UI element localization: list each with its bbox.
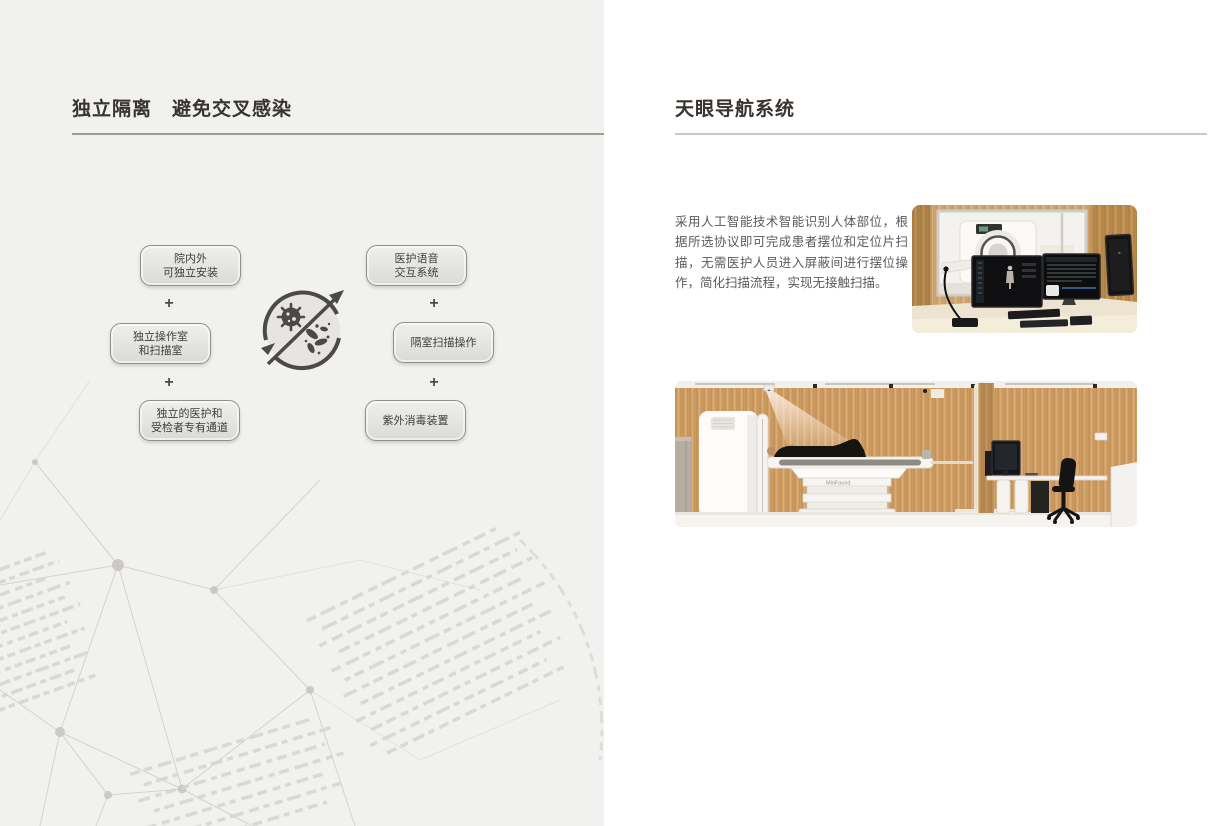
brochure-page: 独立隔离 避免交叉感染 院内外 可独立安装 独立操作室 和扫描室 独立的医护和 … [0,0,1209,826]
network-globe-background [0,0,604,826]
workstation-monitor-left [972,256,1042,307]
feature-box-isolated-scan: 隔室扫描操作 [393,322,494,363]
plus-connector: + [426,295,442,313]
scan-room-photo: MinFound [675,381,1137,527]
feature-box-label: 受检者专有通道 [151,421,228,435]
workstation-monitor-right [1043,254,1100,299]
isolation-title: 独立隔离 避免交叉感染 [72,94,292,121]
navigation-title-rule [675,133,1207,135]
feature-box-separate-rooms: 独立操作室 和扫描室 [110,323,211,364]
feature-box-uv-disinfection: 紫外消毒装置 [365,400,466,441]
right-wall-corner [1111,462,1137,527]
feature-box-voice-interaction: 医护语音 交互系统 [366,245,467,286]
feature-box-label: 独立操作室 [133,330,188,344]
ct-gantry [699,411,768,519]
feature-box-label: 独立的医护和 [157,407,223,421]
feature-box-label: 和扫描室 [139,344,183,358]
isolation-title-rule [72,133,604,135]
device-brand-label: MinFound [826,481,850,487]
feature-box-label: 可独立安装 [163,266,218,280]
navigation-description: 采用人工智能技术智能识别人体部位，根据所选协议即可完成患者摆位和定位片扫描，无需… [675,212,908,293]
feature-box-label: 紫外消毒装置 [383,414,449,428]
feature-box-label: 院内外 [174,252,207,266]
feature-box-label: 医护语音 [395,252,439,266]
plus-connector: + [161,374,177,392]
room-partition [974,383,994,513]
wall-monitor [1105,234,1133,295]
feature-box-label: 交互系统 [395,266,439,280]
feature-box-independent-install: 院内外 可独立安装 [140,245,241,286]
feature-box-label: 隔室扫描操作 [411,336,477,350]
plus-connector: + [161,295,177,313]
navigation-title: 天眼导航系统 [675,94,795,121]
feature-box-dedicated-passages: 独立的医护和 受检者专有通道 [139,400,240,441]
control-room-photo [912,205,1137,333]
plus-connector: + [426,374,442,392]
isolation-section: 独立隔离 避免交叉感染 院内外 可独立安装 独立操作室 和扫描室 独立的医护和 … [0,0,604,826]
no-cross-infection-icon [254,282,352,380]
